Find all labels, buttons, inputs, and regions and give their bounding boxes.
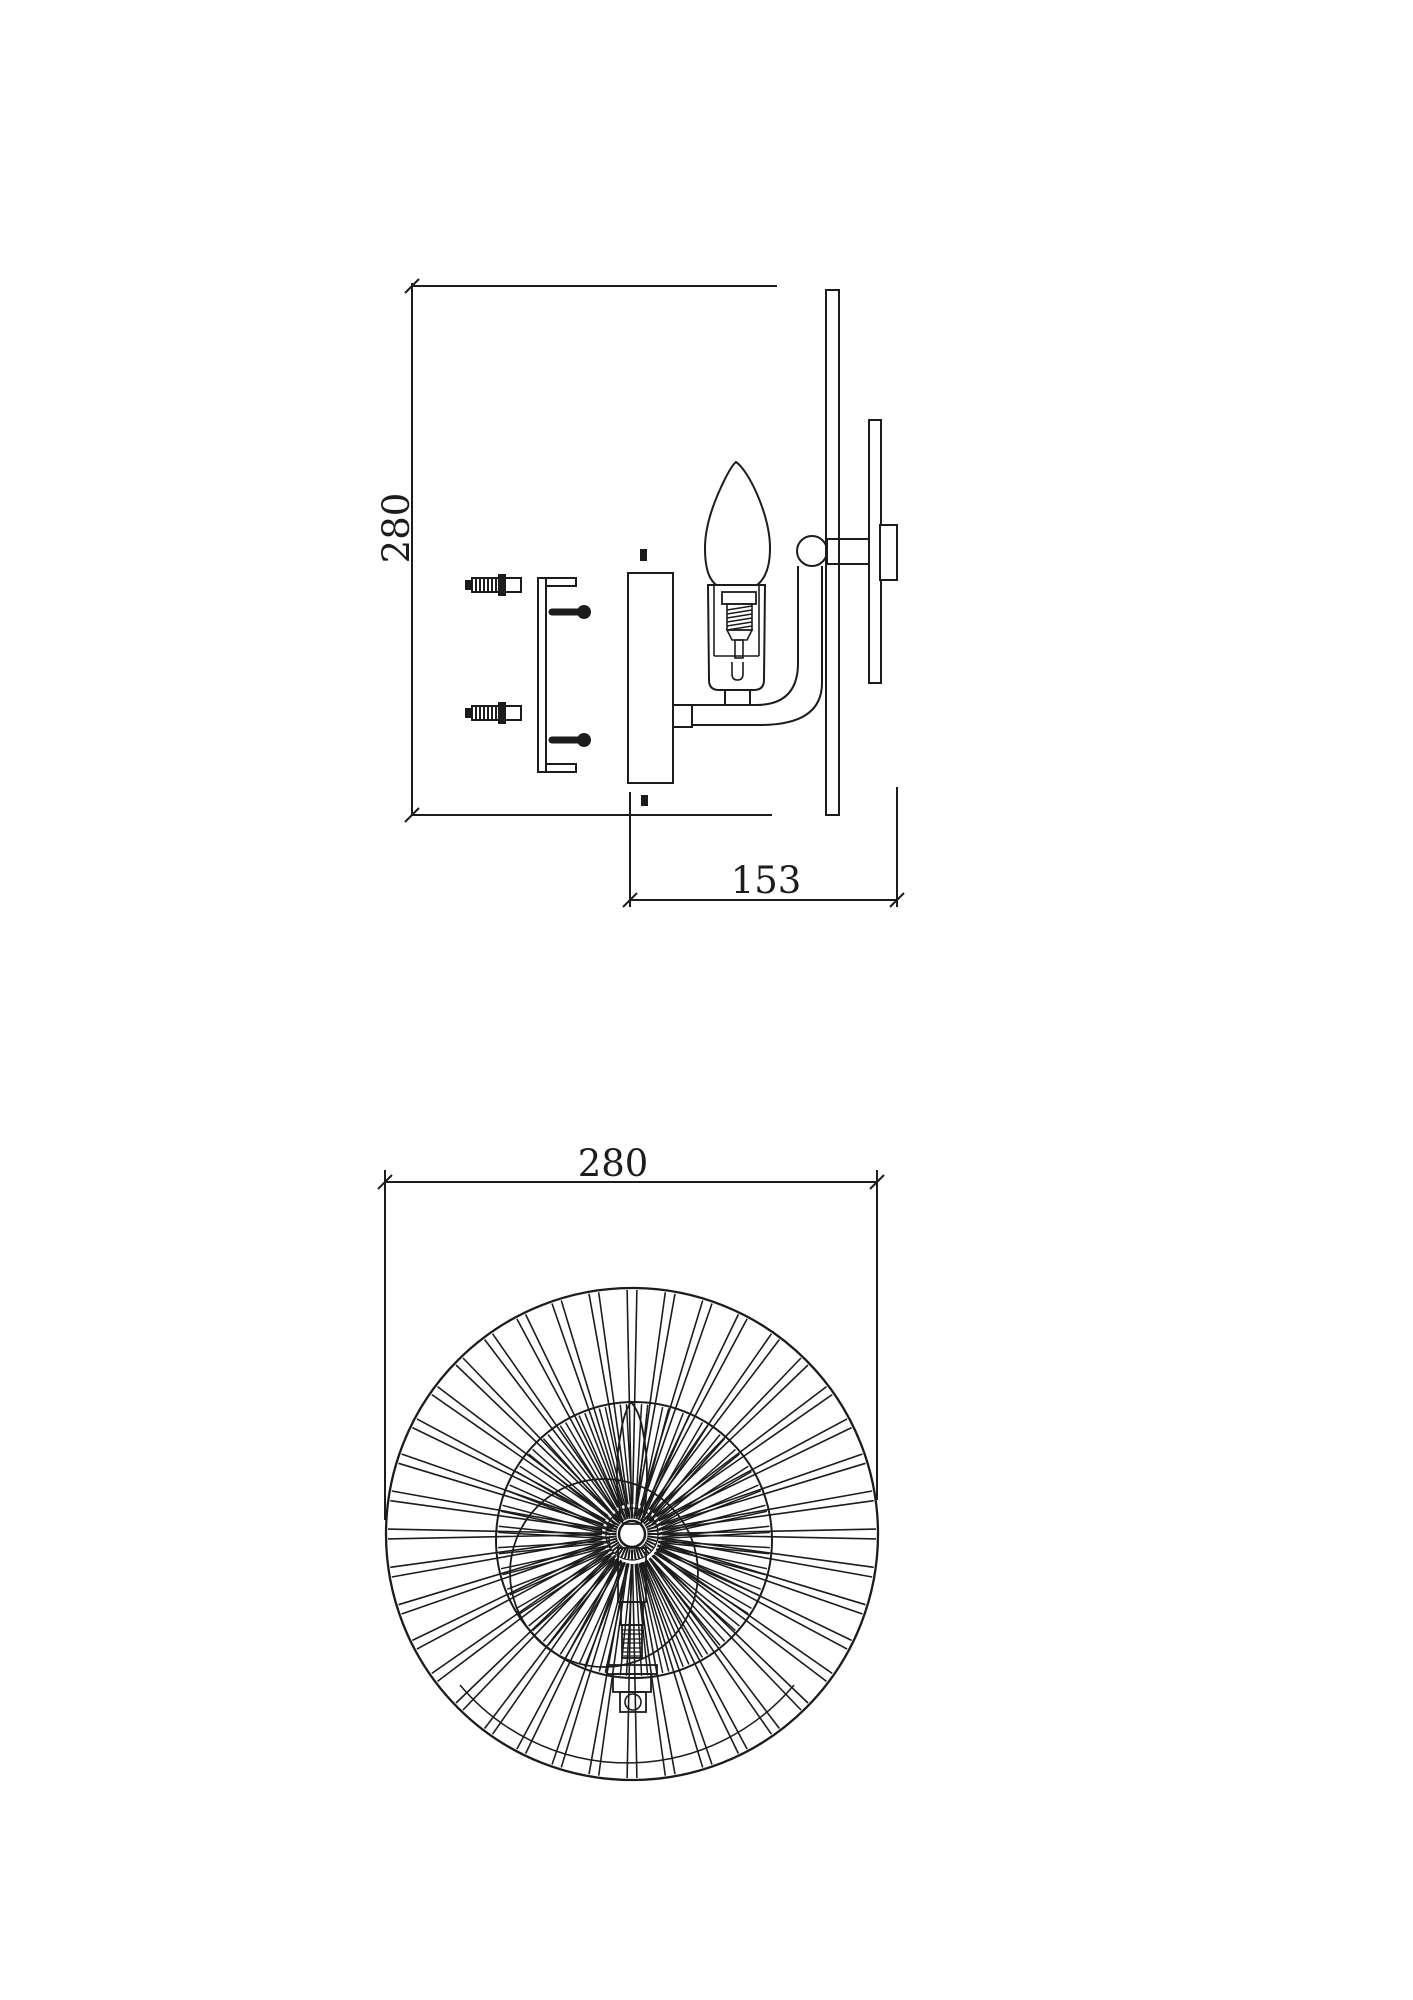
spoke-line bbox=[633, 1290, 637, 1504]
arm-stub bbox=[673, 705, 692, 727]
spoke-line bbox=[649, 1334, 771, 1510]
spoke-line bbox=[526, 1314, 619, 1507]
drawing-canvas: 280 bbox=[0, 0, 1413, 2000]
front-thread-hatch bbox=[622, 1630, 642, 1656]
spoke-line bbox=[662, 1539, 873, 1577]
lamp-socket bbox=[708, 585, 765, 705]
candle-bulb-side bbox=[705, 462, 770, 588]
bracket-vertical bbox=[538, 578, 546, 772]
spoke-line bbox=[659, 1547, 852, 1640]
anchor-sleeve bbox=[505, 706, 521, 720]
spoke-line bbox=[662, 1491, 873, 1529]
height-dim-label: 280 bbox=[375, 493, 418, 564]
backplate-screw-bottom bbox=[641, 795, 648, 806]
spoke-line bbox=[412, 1547, 605, 1640]
screw-head bbox=[577, 733, 591, 747]
spoke-line bbox=[634, 1509, 635, 1519]
depth-dim-label: 153 bbox=[731, 859, 802, 902]
mounting-screw-2 bbox=[552, 733, 591, 747]
depth-dimension: 153 bbox=[623, 787, 904, 907]
width-dim-label: 280 bbox=[578, 1142, 649, 1185]
spoke-line bbox=[607, 1530, 617, 1531]
spoke-line bbox=[647, 1536, 657, 1537]
spoke-line bbox=[647, 1530, 657, 1531]
bracket-bottom-flange bbox=[546, 764, 576, 772]
switch-box bbox=[620, 1692, 646, 1712]
spoke-line bbox=[388, 1529, 602, 1533]
spoke-line bbox=[634, 1549, 635, 1559]
anchor-sleeve bbox=[505, 578, 521, 592]
front-view: 280 bbox=[378, 1142, 884, 1780]
mounting-screw-1 bbox=[552, 605, 591, 619]
spoke-line bbox=[628, 1509, 629, 1519]
spoke-line bbox=[633, 1564, 637, 1778]
ball-joint bbox=[797, 536, 827, 566]
spoke-line bbox=[628, 1549, 629, 1559]
bracket-top-flange bbox=[546, 578, 576, 586]
side-view: 280 bbox=[375, 279, 904, 907]
wall-finial-cup bbox=[880, 525, 897, 580]
screw-head bbox=[577, 605, 591, 619]
spoke-line bbox=[637, 1294, 675, 1505]
backplate-screw-top bbox=[640, 549, 647, 561]
front-socket-neck bbox=[621, 1602, 643, 1625]
wall-backplate bbox=[628, 549, 673, 806]
spoke-line bbox=[607, 1536, 617, 1537]
spoke-line bbox=[645, 1314, 738, 1507]
spoke-line bbox=[493, 1334, 615, 1510]
socket-neck bbox=[725, 690, 750, 705]
backplate-body bbox=[628, 573, 673, 783]
drawing-page: 280 bbox=[0, 0, 1413, 2000]
wall-anchor-2 bbox=[466, 703, 521, 723]
bulb-collar bbox=[722, 592, 756, 604]
spoke-line bbox=[392, 1539, 603, 1577]
switch-knob bbox=[625, 1694, 641, 1710]
wall-anchor-1 bbox=[466, 575, 521, 595]
